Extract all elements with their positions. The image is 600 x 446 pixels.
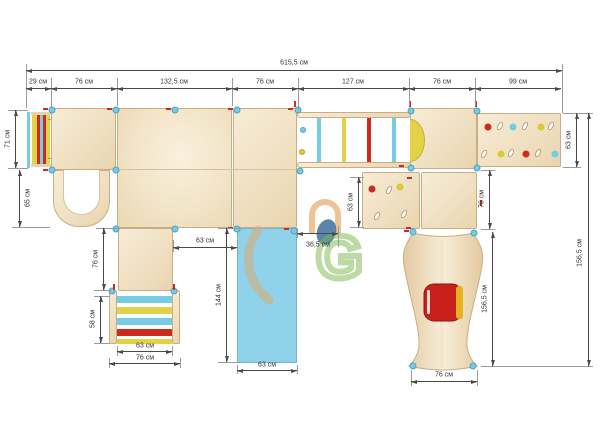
ladder-rail-right [172,290,180,344]
bolt-mark [166,108,171,110]
climb-hold [523,151,530,158]
dim-label-panel63: 63 см [348,193,355,211]
dim-label-tower76: 76 см [435,372,453,379]
bolt-mark [173,284,175,290]
dim-line-tower76 [411,381,477,382]
extension-line [12,227,50,228]
ladder-rung [117,318,172,325]
extension-line [117,78,118,106]
climb-hold [510,124,517,131]
extension-line [237,240,238,252]
extension-line [172,346,173,356]
connector-dot [410,229,417,236]
dim-label-seg29: 29 см [29,79,47,86]
ladder-rail-left [109,290,117,344]
dim-line-rung63 [117,351,172,352]
dim-line-panel63 [358,177,359,227]
tower-tunnel-highlight [427,290,430,314]
bolt-mark [288,108,293,110]
bolt-mark [43,169,48,171]
dim-label-leg76: 76 см [93,250,100,268]
platform-c [233,108,297,228]
dim-label-seg132: 132,5 см [160,79,188,86]
dim-label-slide144: 144 см [216,284,223,306]
playground-technical-drawing: G [0,0,600,446]
connector-dot [234,107,241,114]
platform-a [51,108,116,170]
ladder-rung [117,296,172,303]
bridge-step-yellow [299,149,305,155]
dim-line-gap63 [173,247,237,248]
bridge-step-cyan [300,127,306,133]
dim-line-tower156 [492,232,493,366]
connector-dot [172,107,179,114]
extension-line [94,290,112,291]
bridge-rung [317,118,321,162]
dim-label-wall63: 63 см [566,131,573,149]
dim-line-wall63 [576,113,577,167]
dim-line-seg99 [475,88,561,89]
climb-hold [397,184,404,191]
extension-line [475,78,476,106]
dim-label-height156: 156,5 см [577,239,584,267]
bolt-mark [113,284,115,290]
dim-line-slide63 [237,370,297,371]
extension-line [350,227,364,228]
extension-line [338,226,339,247]
side-ladder-rung [46,115,50,164]
climb-hold [485,124,492,131]
extension-line [96,228,118,229]
ladder-rung [117,307,172,314]
connector-dot [474,108,481,115]
extension-line [180,358,181,368]
dim-label-tower156: 156,5 см [482,285,489,313]
connector-dot [470,363,477,370]
dim-label-seg127: 127 см [342,79,364,86]
connector-dot [471,230,478,237]
bridge-rail-bottom [297,162,411,168]
extension-line [51,78,52,108]
bolt-mark [228,108,233,110]
extension-line [8,168,28,169]
extension-line [8,110,28,111]
dim-label-rung63: 63 см [136,343,154,350]
dim-label-left58: 58 см [90,310,97,328]
bridge-rung [392,118,396,162]
climb-hold [498,151,505,158]
bolt-mark [404,230,409,232]
lower-leg [118,228,173,291]
dim-line-slide144 [226,228,227,362]
dim-line-left58 [100,296,101,343]
dim-label-seg76b: 76 см [256,79,274,86]
connector-dot [49,167,56,174]
connector-dot [408,165,415,172]
extension-line [218,228,239,229]
dim-line-right76 [489,170,490,229]
connector-dot [113,107,120,114]
dim-label-slide63: 63 см [258,362,276,369]
ladder-rung [117,329,172,336]
extension-line [481,229,495,230]
dim-line-seg76b [232,88,298,89]
dim-label-seg76c: 76 см [433,79,451,86]
dim-line-left71 [15,110,16,168]
extension-line [563,167,581,168]
extension-line [297,365,298,374]
connector-dot [49,107,56,114]
connector-dot [408,108,415,115]
dim-label-ladder76: 76 см [136,355,154,362]
extension-line [477,370,478,386]
climb-hold [369,186,376,193]
connector-dot [172,226,179,233]
connector-dot [113,167,120,174]
bolt-mark [107,108,112,110]
climbing-wall [477,113,561,167]
dim-label-overall-width: 615,5 см [280,60,308,67]
extension-line [298,78,299,110]
bridge-rung [367,118,371,162]
extension-line [562,64,563,113]
bolt-mark [43,108,48,110]
dim-label-seg99: 99 см [509,79,527,86]
side-ladder-rail-icon [27,112,30,168]
climb-hold [538,124,545,131]
dim-line-overall-width [26,70,562,71]
connector-dot [297,168,304,175]
dim-line-left65 [19,170,20,227]
tower-tunnel-yellow [456,286,463,319]
connecting-deck [421,172,477,229]
extension-line [409,78,410,106]
extension-line [481,366,593,367]
bolt-mark [406,227,411,229]
bolt-mark [399,165,404,167]
dim-line-seg29 [26,88,51,89]
extension-line [411,370,412,386]
dim-line-seg127 [298,88,409,89]
connector-dot [113,226,120,233]
dim-line-seg76a [51,88,117,89]
bolt-mark [294,101,296,107]
extension-line [232,78,233,106]
dim-line-height156 [588,113,589,366]
climb-hold [552,151,559,158]
dim-line-leg76 [103,228,104,290]
connector-dot [410,363,417,370]
side-ladder [27,112,51,168]
dim-line-seg76c [409,88,475,89]
platform-b [117,108,232,228]
side-ladder-cap [31,164,51,167]
dim-label-mid36: 36,5 см [306,242,330,249]
dim-line-ladder76 [109,363,180,364]
climbing-panel [362,172,420,229]
dim-line-seg132 [117,88,232,89]
dim-label-left71: 71 см [5,130,12,148]
dim-label-right76: 76 см [479,190,486,208]
bridge-rung [342,118,346,162]
connector-dot [474,165,481,172]
bolt-mark [284,228,289,230]
dim-label-left65: 65 см [25,189,32,207]
dim-label-seg76a: 76 см [75,79,93,86]
dim-line-mid36 [297,233,338,234]
arch-tunnel-opening [63,170,100,215]
extension-line [218,362,239,363]
extension-line [94,343,110,344]
platform-seam [118,169,296,170]
dim-label-gap63: 63 см [196,238,214,245]
connector-dot [234,226,241,233]
bolt-mark [407,177,412,179]
curved-tower [400,228,484,372]
